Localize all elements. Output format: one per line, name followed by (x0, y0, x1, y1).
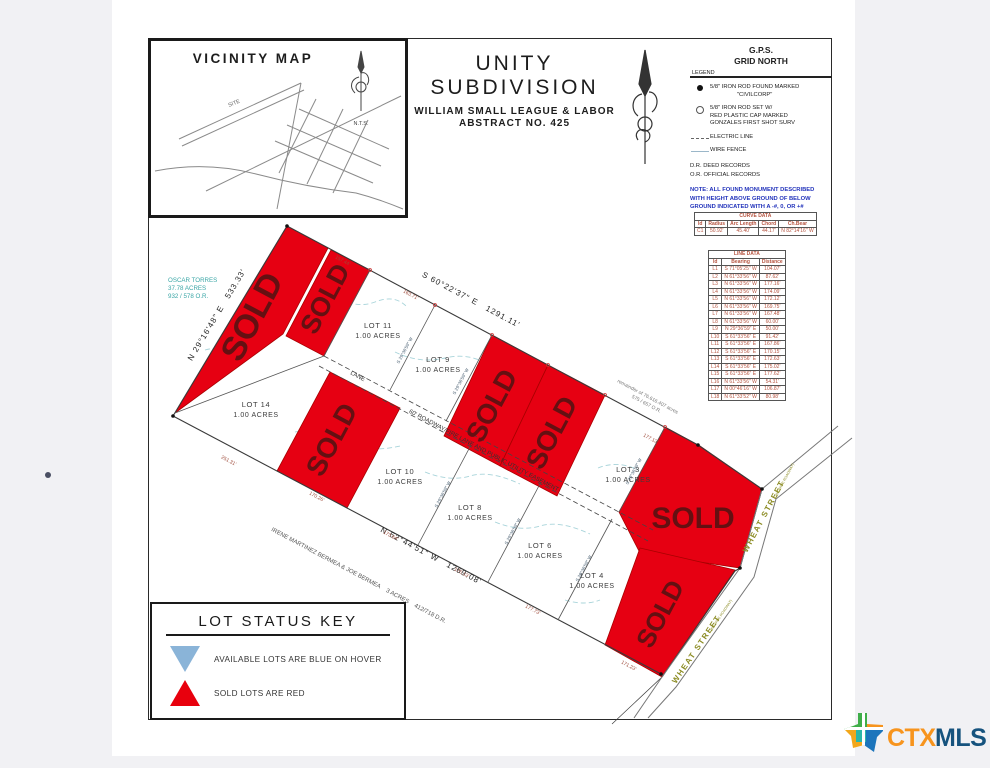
lot-6-acres: 1.00 ACRES (517, 553, 562, 560)
table-cell: N 61°33'56" W (722, 273, 760, 281)
sold-key-label: SOLD LOTS ARE RED (214, 689, 305, 698)
lot-status-key: LOT STATUS KEY AVAILABLE LOTS ARE BLUE O… (150, 602, 406, 720)
legend-item2-line1: 5/8" IRON ROD SET W/ (710, 105, 795, 113)
table-cell: S 71°05'25" W (722, 266, 760, 274)
table-cell: S 61°33'56" E (722, 341, 760, 349)
svg-text:932 / 578 O.R.: 932 / 578 O.R. (168, 293, 209, 300)
listing-photo-canvas: SOLD SOLD SOLD SOLD SOLD SOLD SOLD LOT 1… (0, 0, 990, 768)
table-row: L13S 61°33'56" E172.63' (709, 356, 786, 364)
table-header: Distance (759, 258, 785, 266)
legend-item4-label: WIRE FENCE (710, 147, 746, 155)
gps-line1: G.P.S. (690, 45, 832, 56)
lot-10-acres: 1.00 ACRES (377, 479, 422, 486)
table-row: L12S 61°33'56" E170.15' (709, 348, 786, 356)
table-cell: S 61°33'56" E (722, 371, 760, 379)
lot-14-label[interactable]: LOT 14 (242, 400, 270, 409)
table-row: L5N 61°33'56" W172.12' (709, 296, 786, 304)
table-cell: L6 (709, 303, 722, 311)
sold-text-east: SOLD (651, 502, 734, 535)
table-cell: 172.63' (759, 356, 785, 364)
vicinity-nts: N.T.S. (354, 121, 369, 127)
legend-panel: G.P.S. GRID NORTH LEGEND 5/8" IRON ROD F… (690, 45, 832, 212)
sold-parcel-east[interactable] (619, 427, 762, 568)
table-cell: N 61°33'56" W (722, 288, 760, 296)
bearing-top: S 60°22'37" E 1291.11' (421, 270, 522, 330)
lane-short-label: LANE (349, 370, 366, 383)
table-cell: 91.42' (759, 333, 785, 341)
table-cell: 45.40' (728, 228, 759, 236)
table-cell: 177.62' (759, 371, 785, 379)
table-header: Id (695, 220, 706, 228)
subdivision-subtitle: WILLIAM SMALL LEAGUE & LABOR (407, 106, 622, 117)
table-cell: N 61°33'56" W (722, 318, 760, 326)
vicinity-north-arrow-icon (352, 51, 369, 111)
electric-line-icon (690, 134, 710, 142)
curve-data-table: CURVE DATA IdRadiusArc LengthChordCh.Bea… (694, 212, 817, 236)
cross-bearing-5: S 29°36'59" W (504, 517, 522, 546)
table-cell: 167.86' (759, 341, 785, 349)
table-cell: 172.12' (759, 296, 785, 304)
official-records-abbrev: O.R. OFFICIAL RECORDS (690, 171, 832, 180)
table-cell: S 61°33'56" E (722, 348, 760, 356)
gps-line2: GRID NORTH (690, 56, 832, 67)
table-row: L1S 71°05'25" W104.07' (709, 266, 786, 274)
table-row: L6N 61°33'56" W169.75' (709, 303, 786, 311)
table-cell: 175.02' (759, 363, 785, 371)
dim-1: 163.71' (402, 289, 419, 302)
dim-3: 251.31' (220, 455, 237, 468)
table-cell: 177.16' (759, 281, 785, 289)
table-cell: L12 (709, 348, 722, 356)
lot-11-acres: 1.00 ACRES (355, 333, 400, 340)
lot-14-acres: 1.00 ACRES (233, 412, 278, 419)
legend-item1-line2: "CIVILCORP" (710, 92, 799, 100)
vicinity-map-box: VICINITY MAP SITE N.T.S. (148, 38, 408, 218)
table-row: L2N 61°33'56" W87.62' (709, 273, 786, 281)
table-row: L16N 61°33'56" W54.31' (709, 378, 786, 386)
table-cell: L3 (709, 281, 722, 289)
subdivision-title: UNITY SUBDIVISION (407, 52, 622, 100)
ctxmls-logo[interactable]: CTX MLS (843, 710, 989, 762)
table-cell: 174.09' (759, 288, 785, 296)
logo-mls-text: MLS (935, 724, 986, 752)
table-cell: L8 (709, 318, 722, 326)
sold-triangle-icon (170, 680, 200, 706)
table-header: Chord (759, 220, 779, 228)
table-cell: 169.75' (759, 303, 785, 311)
legend-item2-line2: RED PLASTIC CAP MARKED (710, 113, 795, 121)
table-header: Bearing (722, 258, 760, 266)
lot-8-acres: 1.00 ACRES (447, 515, 492, 522)
table-cell: 60.00' (759, 318, 785, 326)
logo-ctx-text: CTX (887, 724, 936, 752)
table-cell: L10 (709, 333, 722, 341)
table-row: L15S 61°33'56" E177.62' (709, 371, 786, 379)
dim-2: 177.13' (642, 433, 659, 446)
table-row: L14S 61°33'56" E175.02' (709, 363, 786, 371)
table-row: L10S 61°33'56" E91.42' (709, 333, 786, 341)
table-cell: N 61°33'56" W (722, 378, 760, 386)
table-cell: L15 (709, 371, 722, 379)
legend-item3-label: ELECTRIC LINE (710, 134, 753, 142)
adjoiner-ne: remainder of 76.616.407 acres 575 / 657 … (613, 378, 680, 422)
table-cell: N 29°36'59" E (722, 326, 760, 334)
table-cell: 50.92' (706, 228, 728, 236)
vicinity-roads (155, 83, 403, 209)
table-cell: S 61°33'56" E (722, 356, 760, 364)
table-cell: L2 (709, 273, 722, 281)
north-arrow-icon (622, 44, 668, 170)
available-key-label: AVAILABLE LOTS ARE BLUE ON HOVER (214, 655, 382, 664)
vicinity-title: VICINITY MAP (193, 51, 314, 66)
abstract-number: ABSTRACT NO. 425 (407, 118, 622, 129)
table-cell: C1 (695, 228, 706, 236)
table-row: L9N 29°36'59" E50.00' (709, 326, 786, 334)
curve-table-title: CURVE DATA (695, 213, 817, 221)
table-header: Radius (706, 220, 728, 228)
table-row: L11S 61°33'56" E167.86' (709, 341, 786, 349)
table-cell: N 61°33'56" W (722, 311, 760, 319)
table-cell: 44.17' (759, 228, 779, 236)
table-cell: S 61°33'56" E (722, 363, 760, 371)
iron-rod-found-icon (690, 84, 710, 99)
table-cell: N 61°33'56" W (722, 303, 760, 311)
table-cell: L17 (709, 386, 722, 394)
lot-11-label[interactable]: LOT 11 (364, 321, 392, 330)
table-cell: L5 (709, 296, 722, 304)
status-key-title: LOT STATUS KEY (152, 613, 404, 630)
table-cell: L11 (709, 341, 722, 349)
table-cell: N 00°46'16" W (722, 386, 760, 394)
deed-records-abbrev: D.R. DEED RECORDS (690, 162, 832, 171)
table-cell: 167.48' (759, 311, 785, 319)
monument-note: NOTE: ALL FOUND MONUMENT DESCRIBED WITH … (690, 186, 832, 211)
table-row: L18N 61°33'52" W80.98' (709, 393, 786, 401)
table-cell: L16 (709, 378, 722, 386)
lot-8-label[interactable]: LOT 8 (458, 503, 482, 512)
legend-item2-line3: GONZALES FIRST SHOT SURV (710, 120, 795, 128)
table-cell: N 82°14'16" W (779, 228, 817, 236)
title-block: UNITY SUBDIVISION WILLIAM SMALL LEAGUE &… (407, 52, 622, 129)
table-cell: L9 (709, 326, 722, 334)
table-row: C150.92'45.40'44.17'N 82°14'16" W (695, 228, 817, 236)
lot-6-label[interactable]: LOT 6 (528, 541, 552, 550)
table-cell: 104.07' (759, 266, 785, 274)
table-cell: 54.31' (759, 378, 785, 386)
texas-icon (843, 710, 885, 754)
line-table-title: LINE DATA (709, 251, 786, 259)
adjoiner-nw: OSCAR TORRES 37.78 ACRES 932 / 578 O.R. (168, 277, 217, 300)
line-data-table: LINE DATA IdBearingDistance L1S 71°05'25… (708, 250, 786, 401)
available-triangle-icon (170, 646, 200, 672)
cross-bearing-4: S 29°36'59" W (434, 480, 452, 509)
table-cell: L13 (709, 356, 722, 364)
table-row: L17N 00°46'16" W106.87' (709, 386, 786, 394)
lot-4-acres: 1.00 ACRES (569, 583, 614, 590)
table-row: L7N 61°33'56" W167.48' (709, 311, 786, 319)
table-cell: L18 (709, 393, 722, 401)
table-cell: 80.98' (759, 393, 785, 401)
table-cell: N 61°33'56" W (722, 296, 760, 304)
lot-9-acres: 1.00 ACRES (415, 367, 460, 374)
table-cell: L1 (709, 266, 722, 274)
table-cell: L7 (709, 311, 722, 319)
iron-rod-set-icon (690, 105, 710, 128)
lot-10-label[interactable]: LOT 10 (386, 467, 414, 476)
table-cell: 50.00' (759, 326, 785, 334)
svg-text:remainder of 76.616.407 acres: remainder of 76.616.407 acres (616, 378, 679, 416)
svg-text:OSCAR TORRES: OSCAR TORRES (168, 277, 217, 284)
table-cell: L14 (709, 363, 722, 371)
legend-heading: LEGEND (692, 70, 715, 76)
table-cell: N 61°33'52" W (722, 393, 760, 401)
table-row: L4N 61°33'56" W174.09' (709, 288, 786, 296)
table-cell: 106.87' (759, 386, 785, 394)
table-cell: S 61°33'56" E (722, 333, 760, 341)
lot-9-label[interactable]: LOT 9 (426, 355, 450, 364)
table-row: L3N 61°33'56" W177.16' (709, 281, 786, 289)
table-cell: L4 (709, 288, 722, 296)
table-header: Id (709, 258, 722, 266)
vicinity-site-label: SITE (228, 99, 242, 109)
table-cell: 87.62' (759, 273, 785, 281)
table-header: Arc Length (728, 220, 759, 228)
table-cell: 170.15' (759, 348, 785, 356)
wire-fence-icon (690, 147, 710, 155)
svg-text:37.78 ACRES: 37.78 ACRES (168, 285, 206, 292)
table-cell: N 61°33'56" W (722, 281, 760, 289)
legend-item1-line1: 5/8" IRON ROD FOUND MARKED (710, 84, 799, 92)
table-header: Ch.Bear (779, 220, 817, 228)
table-row: L8N 61°33'56" W60.00' (709, 318, 786, 326)
